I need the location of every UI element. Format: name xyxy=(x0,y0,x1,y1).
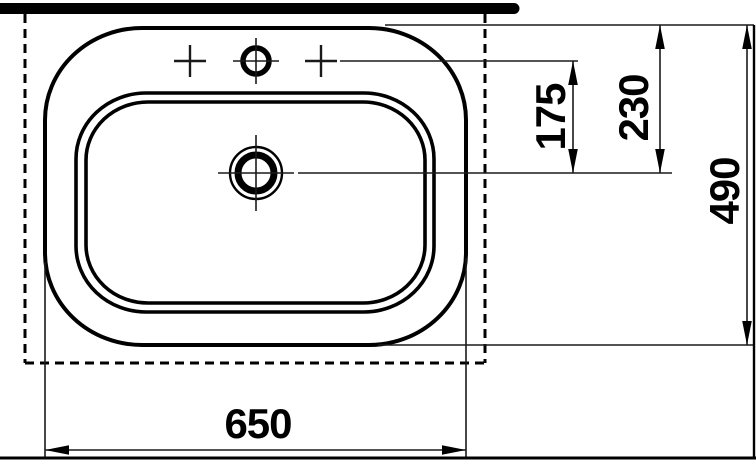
tap-mark-right-icon xyxy=(305,45,337,77)
dimension-tap-to-drain: 175 xyxy=(527,61,578,173)
dimension-label-230: 230 xyxy=(610,74,657,141)
tap-mark-left-icon xyxy=(174,45,206,77)
dimension-depth: 490 xyxy=(701,25,752,345)
arrow-up-icon xyxy=(568,61,578,85)
arrow-right-icon xyxy=(442,445,466,455)
arrow-down-icon xyxy=(568,149,578,173)
dimension-width: 650 xyxy=(45,400,466,455)
arrow-down-icon xyxy=(655,149,665,173)
basin-inner-rim xyxy=(76,93,434,312)
drawing-canvas: 175 230 490 650 xyxy=(0,0,756,460)
dimension-label-650: 650 xyxy=(224,400,291,447)
wall-line xyxy=(0,3,520,14)
arrow-up-icon xyxy=(655,25,665,49)
dimension-label-490: 490 xyxy=(701,157,748,224)
tap-hole-icon xyxy=(233,38,279,84)
dimension-rear-to-drain: 230 xyxy=(610,25,665,173)
arrow-down-icon xyxy=(742,321,752,345)
dimension-label-175: 175 xyxy=(527,83,574,151)
washbasin-technical-drawing: 175 230 490 650 xyxy=(0,0,756,460)
arrow-up-icon xyxy=(742,25,752,49)
arrow-left-icon xyxy=(45,445,69,455)
drain-icon xyxy=(218,135,294,211)
